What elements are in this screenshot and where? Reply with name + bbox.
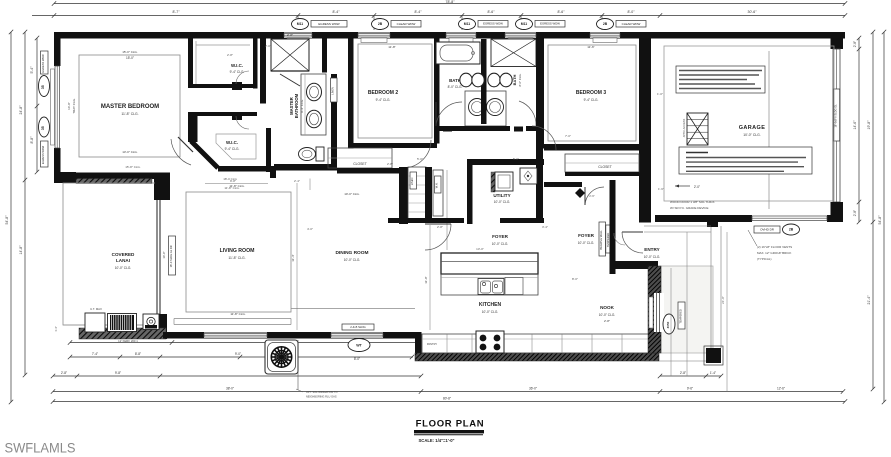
svg-text:19'-8": 19'-8" [867,120,871,130]
svg-text:U.T. MAX: U.T. MAX [90,307,102,311]
svg-text:2B: 2B [603,22,608,26]
svg-text:2'-4": 2'-4" [294,179,300,183]
svg-text:8'-0": 8'-0" [354,357,360,361]
svg-text:11'-8" CLG.: 11'-8" CLG. [121,112,138,116]
svg-text:BATH: BATH [512,74,517,85]
svg-text:2'-0": 2'-0" [694,185,700,189]
svg-text:1'-4": 1'-4" [54,326,58,332]
svg-text:M11: M11 [297,22,304,26]
svg-text:10'-0" CLG.: 10'-0" CLG. [494,200,511,204]
svg-text:SWFLAMLS: SWFLAMLS [5,441,76,456]
svg-text:1'-6": 1'-6" [658,187,664,191]
svg-text:KITCHEN: KITCHEN [479,302,502,308]
svg-text:8'-0": 8'-0" [628,10,636,14]
svg-text:8'-8": 8'-8" [135,352,141,356]
svg-text:8'-4": 8'-4" [333,10,341,14]
svg-text:4'-0": 4'-0" [307,227,313,231]
svg-text:9'-6": 9'-6" [687,387,693,391]
svg-text:13'-0": 13'-0" [476,247,484,251]
svg-text:14'-6": 14'-6" [853,120,857,130]
svg-text:9'-4" CLG.: 9'-4" CLG. [376,98,391,102]
svg-text:EGRESS WDW: EGRESS WDW [41,145,45,164]
svg-text:TEMPERED: TEMPERED [679,309,683,324]
svg-text:13'-0" CLG.: 13'-0" CLG. [122,150,138,154]
svg-text:11'-8" CLG.: 11'-8" CLG. [228,256,245,260]
svg-text:LANAI: LANAI [116,258,130,263]
svg-text:ENTRY: ENTRY [644,247,659,252]
svg-text:(2) 16"x8" FLOOR VENTS: (2) 16"x8" FLOOR VENTS [757,245,792,249]
svg-text:15'-0" CLG.: 15'-0" CLG. [122,50,138,54]
svg-text:BATH: BATH [449,78,461,83]
svg-text:BEDROOM 2: BEDROOM 2 [368,90,399,96]
svg-text:2'-8": 2'-8" [287,33,293,37]
svg-text:9'-4" CLG.: 9'-4" CLG. [225,147,240,151]
svg-text:10'-0" CLG.: 10'-0" CLG. [482,310,499,314]
svg-text:15'-8" CLG.: 15'-8" CLG. [125,165,141,169]
svg-text:35: 35 [41,126,45,130]
svg-text:2'-6": 2'-6" [589,194,595,198]
svg-text:OVHD DR: OVHD DR [760,228,775,232]
svg-text:2B: 2B [378,22,383,26]
svg-text:2'-8": 2'-8" [437,225,443,229]
svg-text:BATHROOM: BATHROOM [294,93,299,118]
svg-text:10'-0" CLG.: 10'-0" CLG. [344,192,360,196]
svg-text:2B: 2B [789,228,794,232]
svg-text:W.I.C.: W.I.C. [226,140,238,145]
svg-text:2'-8": 2'-8" [387,162,393,166]
svg-text:14'-0": 14'-0" [67,102,71,110]
svg-text:8'-0" CLG.: 8'-0" CLG. [518,73,522,86]
svg-text:54'-8": 54'-8" [5,215,9,225]
svg-text:W.H.: W.H. [435,182,439,188]
svg-text:10'-0" CLG.: 10'-0" CLG. [578,241,595,245]
svg-text:78'-8": 78'-8" [446,0,456,4]
svg-text:2'-8": 2'-8" [680,371,686,375]
svg-text:2'-8": 2'-8" [61,371,67,375]
svg-text:14'-8": 14'-8" [19,245,23,255]
svg-text:TEMPERED: TEMPERED [606,233,610,248]
svg-text:NEIGHBORING RLU GAS: NEIGHBORING RLU GAS [306,395,337,399]
svg-text:7'-0": 7'-0" [565,134,571,138]
svg-text:EGRESS WDW: EGRESS WDW [540,22,560,26]
svg-text:EGRESS WDW: EGRESS WDW [318,22,339,26]
svg-text:MASTER BEDROOM: MASTER BEDROOM [101,104,159,110]
svg-text:10'-0" CLG.: 10'-0" CLG. [492,242,509,246]
svg-text:FLOOR PLAN: FLOOR PLAN [416,419,485,430]
svg-text:5'-4": 5'-4" [30,66,34,74]
svg-text:DINING ROOM: DINING ROOM [335,250,368,256]
svg-text:5'-0": 5'-0" [417,157,423,161]
svg-text:2'-8": 2'-8" [604,319,610,323]
svg-text:7'-4": 7'-4" [92,352,98,356]
svg-text:80'-8": 80'-8" [443,397,451,401]
svg-text:10'-0" CLG.: 10'-0" CLG. [644,255,661,259]
svg-text:CLEAR WDW: CLEAR WDW [397,22,416,26]
svg-text:8'-6": 8'-6" [488,10,496,14]
svg-text:9'-4" CLG.: 9'-4" CLG. [230,70,245,74]
svg-text:CLOSET: CLOSET [598,165,612,169]
svg-text:COVERED: COVERED [112,252,135,257]
svg-text:1'-4": 1'-4" [710,371,716,375]
svg-text:LIVING ROOM: LIVING ROOM [220,248,255,254]
svg-text:4050: 4050 [666,321,670,328]
svg-text:LINEN: LINEN [410,177,414,185]
svg-text:WOOD DOOR 1 3/8" SOL THICK: WOOD DOOR 1 3/8" SOL THICK [670,200,715,204]
svg-text:2'-8": 2'-8" [227,53,233,57]
svg-text:LINEN: LINEN [331,87,335,95]
svg-text:CLOSET: CLOSET [353,162,367,166]
svg-text:2'-0": 2'-0" [265,44,271,48]
svg-text:FOYER: FOYER [492,234,509,239]
svg-text:9'-8": 9'-8" [115,371,121,375]
svg-text:9'-4" CLG.: 9'-4" CLG. [584,98,599,102]
svg-text:11'-4": 11'-4" [291,254,295,261]
svg-text:8'-6": 8'-6" [558,10,566,14]
svg-text:10'-0" CLG.: 10'-0" CLG. [344,258,361,262]
svg-text:35: 35 [41,85,45,89]
svg-text:UTILITY: UTILITY [493,193,510,198]
svg-text:16'-0": 16'-0" [162,251,166,258]
svg-text:M11: M11 [521,22,528,26]
svg-text:PANTRY: PANTRY [427,342,438,346]
svg-text:38'-0": 38'-0" [226,387,234,391]
svg-text:3'-4": 3'-4" [542,225,548,229]
svg-text:WT: WT [356,343,362,347]
svg-text:21'-4": 21'-4" [867,295,871,305]
svg-text:11'-0": 11'-0" [424,276,428,283]
svg-text:OPT. SOL IRRIGATION TO: OPT. SOL IRRIGATION TO [306,390,337,394]
svg-text:11'-8": 11'-8" [388,45,395,49]
svg-text:W/ SR P.C. GRADE DEVICE: W/ SR P.C. GRADE DEVICE [670,206,708,210]
svg-text:11'-8" CLG.: 11'-8" CLG. [224,186,239,190]
svg-text:8'-8": 8'-8" [30,136,34,144]
svg-text:16'-0 SLDG GL DR: 16'-0 SLDG GL DR [169,245,173,267]
svg-text:BEARING WALL: BEARING WALL [599,230,603,250]
svg-text:30'-6": 30'-6" [748,10,758,14]
svg-text:18'-0 CLG: 18'-0 CLG [223,177,237,181]
svg-text:M11: M11 [464,22,471,26]
svg-text:FOYER: FOYER [578,233,595,238]
svg-text:11'-8" CLG.: 11'-8" CLG. [230,312,245,316]
svg-text:GARAGE: GARAGE [739,125,766,131]
svg-text:10'-0" CLG.: 10'-0" CLG. [743,133,761,137]
svg-text:8'-4": 8'-4" [415,10,423,14]
svg-text:5'-0": 5'-0" [513,157,519,161]
svg-text:10'-0" CLG.: 10'-0" CLG. [599,313,616,317]
svg-text:24'-8": 24'-8" [19,105,23,115]
svg-text:21'-0": 21'-0" [721,296,725,304]
svg-text:54'-8": 54'-8" [878,215,882,225]
svg-text:CLEAR WDW: CLEAR WDW [622,22,641,26]
svg-text:9'-0": 9'-0" [235,352,241,356]
svg-text:10'-0" CLG.: 10'-0" CLG. [115,266,132,270]
svg-text:12' KERF 200 1: 12' KERF 200 1 [118,339,138,343]
svg-text:2-4x5 SLDG: 2-4x5 SLDG [350,325,365,329]
svg-text:2'-8": 2'-8" [853,41,857,47]
svg-text:11'-6": 11'-6" [587,45,594,49]
svg-text:NOOK: NOOK [600,305,614,310]
svg-text:8'-0": 8'-0" [572,277,578,281]
svg-text:SCALE: 1/4"=1'-0": SCALE: 1/4"=1'-0" [419,438,455,443]
svg-text:EGRESS WDW: EGRESS WDW [483,22,503,26]
svg-text:8'-0" CLG.: 8'-0" CLG. [448,85,463,89]
svg-text:(TYPICAL): (TYPICAL) [757,257,772,261]
svg-text:1'-0": 1'-0" [657,92,663,96]
svg-text:EGRESS WDW: EGRESS WDW [41,54,45,73]
svg-text:BEDROOM 3: BEDROOM 3 [576,90,607,96]
svg-text:15'-0": 15'-0" [126,56,134,60]
svg-text:2'-8": 2'-8" [853,210,857,216]
svg-text:12'-6": 12'-6" [777,387,785,391]
svg-text:TRAY CLG.: TRAY CLG. [72,98,76,114]
svg-text:W.I.C.: W.I.C. [231,63,243,68]
svg-text:36'-0": 36'-0" [529,387,537,391]
svg-text:8'-7": 8'-7" [173,10,181,14]
svg-text:ATTIC ACCESS: ATTIC ACCESS [682,118,686,137]
svg-text:MAX. 12" GROUP BRICK: MAX. 12" GROUP BRICK [757,251,791,255]
